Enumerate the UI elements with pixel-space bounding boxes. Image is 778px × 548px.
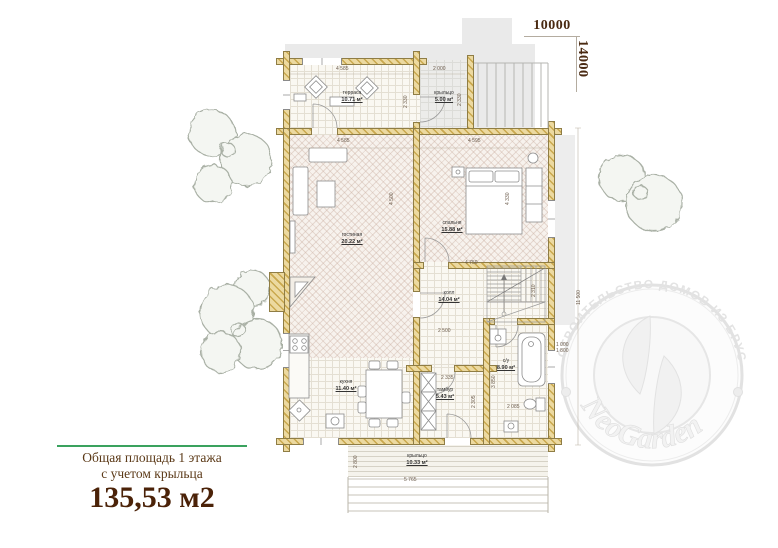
dim-label: 4 750 bbox=[465, 261, 478, 266]
watermark-dot-right bbox=[734, 388, 743, 397]
room-label-porch-bottom: крыльцо10.33 м² bbox=[385, 453, 449, 467]
dim-label: 2 310 bbox=[532, 284, 537, 297]
dim-label: 2 335 bbox=[441, 376, 454, 381]
window bbox=[283, 80, 290, 110]
dim-label: 4 500 bbox=[390, 192, 395, 205]
room-living-floor bbox=[290, 135, 413, 358]
summary-accent-line bbox=[57, 445, 247, 447]
room-label-hall: холл14.04 м² bbox=[417, 290, 481, 304]
chimney bbox=[269, 272, 285, 312]
room-bedroom-floor bbox=[420, 135, 548, 262]
room-label-porch-top: крыльцо5.00 м² bbox=[412, 90, 476, 104]
dim-label: 2 330 bbox=[404, 95, 409, 108]
wall bbox=[548, 121, 555, 452]
floor-plan-page: СТРОИТЕЛЬСТВО ДОМОВ ИЗ БРУСА NeoGarden bbox=[0, 0, 778, 548]
dim-label: 2 500 bbox=[438, 329, 451, 334]
site-height-line bbox=[576, 36, 577, 92]
window bbox=[283, 333, 290, 368]
dim-label: 1 800 bbox=[556, 349, 569, 354]
leaf-icon bbox=[623, 316, 651, 394]
room-label-kitchen: кухня11.40 м² bbox=[314, 379, 378, 393]
dim-label: 2 330 bbox=[458, 93, 463, 106]
svg-text:NeoGarden: NeoGarden bbox=[574, 390, 708, 456]
dim-label: 3 850 bbox=[492, 375, 497, 388]
window bbox=[303, 438, 339, 445]
wall bbox=[276, 58, 427, 65]
wall bbox=[406, 365, 432, 372]
wall bbox=[276, 128, 312, 135]
room-label-terrace: терраса10.71 м² bbox=[320, 90, 384, 104]
summary-line-2: с учетом крыльца bbox=[32, 466, 272, 482]
site-width-dimension: 10000 bbox=[524, 18, 580, 34]
room-kitchen-floor bbox=[290, 358, 413, 438]
wall bbox=[413, 262, 424, 269]
leaf-icon bbox=[654, 356, 682, 434]
roof-outline-right-strip bbox=[553, 135, 575, 325]
window bbox=[548, 350, 555, 384]
roof-outline-top-right bbox=[462, 18, 512, 46]
window bbox=[302, 58, 342, 65]
room-label-bedroom: спальня15.88 м² bbox=[420, 220, 484, 234]
wall bbox=[337, 128, 562, 135]
window bbox=[548, 200, 555, 238]
dim-label: 4 595 bbox=[468, 139, 481, 144]
wall bbox=[413, 51, 420, 95]
wall bbox=[483, 318, 490, 445]
dim-label: 2 085 bbox=[507, 405, 520, 410]
dim-label: 4 585 bbox=[337, 139, 350, 144]
dim-label: 4 330 bbox=[506, 192, 511, 205]
entrance-steps-bottom bbox=[348, 477, 548, 513]
dim-label: 4 585 bbox=[336, 67, 349, 72]
room-label-tambour: тамбур5.43 м² bbox=[413, 387, 477, 401]
dim-label: 11 500 bbox=[577, 290, 582, 305]
dim-label: 2 000 bbox=[433, 67, 446, 72]
wall bbox=[413, 317, 420, 445]
dim-label: 2 305 bbox=[472, 395, 477, 408]
dim-label: 2 800 bbox=[354, 455, 359, 468]
watermark-dot-left bbox=[562, 388, 571, 397]
site-width-line bbox=[524, 36, 580, 37]
room-label-living: гостиная20.22 м² bbox=[320, 232, 384, 246]
total-area-value: 135,53 м2 bbox=[32, 481, 272, 515]
room-label-bathroom: с/у8.90 м² bbox=[474, 358, 538, 372]
summary-line-1: Общая площадь 1 этажа bbox=[32, 450, 272, 466]
wall bbox=[517, 318, 555, 325]
dim-label: 5 765 bbox=[404, 478, 417, 483]
watermark-brand-text: NeoGarden bbox=[574, 390, 708, 456]
